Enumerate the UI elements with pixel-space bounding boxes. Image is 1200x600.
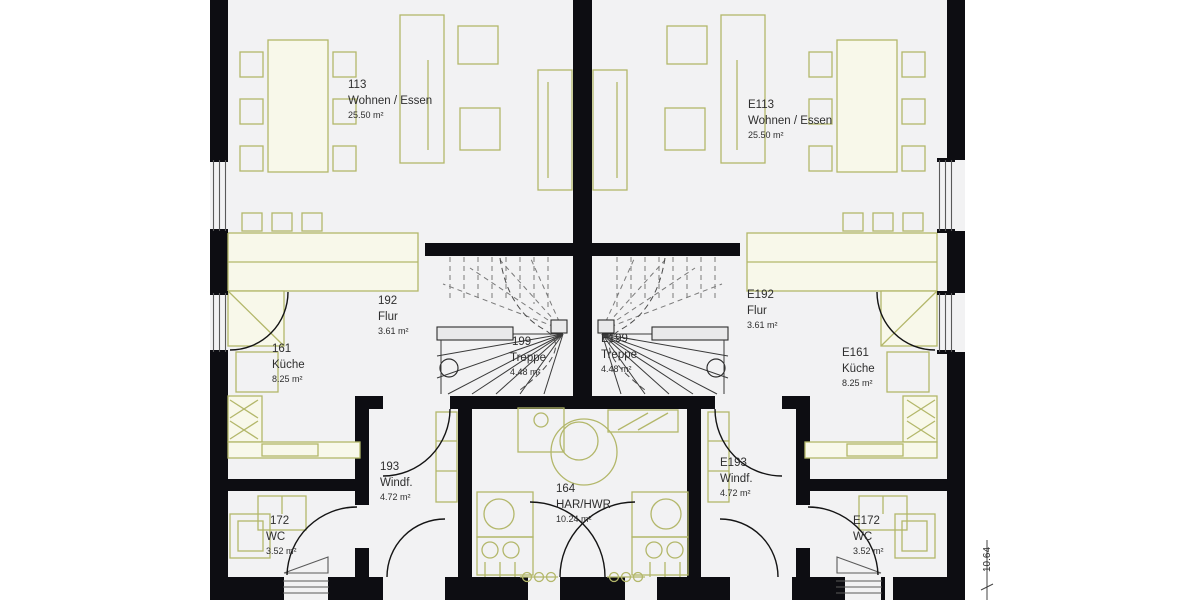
room-name: Küche xyxy=(272,359,305,371)
room-area: 8.25 m² xyxy=(272,374,303,384)
room-name: WC xyxy=(853,531,872,543)
room-area: 4.72 m² xyxy=(720,488,751,498)
room-name: Windf. xyxy=(720,473,753,485)
room-name: WC xyxy=(266,531,285,543)
room-area: 3.61 m² xyxy=(378,326,409,336)
room-number: 161 xyxy=(272,343,291,355)
room-number: E161 xyxy=(842,347,869,359)
room-area: 3.61 m² xyxy=(747,320,778,330)
room-name: Wohnen / Essen xyxy=(348,95,432,107)
room-name: Wohnen / Essen xyxy=(748,115,832,127)
room-area: 25.50 m² xyxy=(348,110,384,120)
room-area: 4.48 m² xyxy=(601,364,632,374)
room-area: 4.48 m² xyxy=(510,367,541,377)
room-area: 25.50 m² xyxy=(748,130,784,140)
room-name: Flur xyxy=(747,305,767,317)
room-number: 199 xyxy=(512,336,531,348)
floor-plan-page: 113 Wohnen / Essen 25.50 m² 192 Flur 3.6… xyxy=(0,0,1200,600)
room-name: Küche xyxy=(842,363,875,375)
room-number: 193 xyxy=(380,461,399,473)
room-number: E172 xyxy=(853,515,880,527)
floor-plan-drawing: 113 Wohnen / Essen 25.50 m² 192 Flur 3.6… xyxy=(0,0,1200,600)
room-area: 3.52 m² xyxy=(266,546,297,556)
room-number: 113 xyxy=(348,79,366,91)
room-number: E192 xyxy=(747,289,774,301)
room-area: 4.72 m² xyxy=(380,492,411,502)
room-name: Windf. xyxy=(380,477,413,489)
room-name: HAR/HWR xyxy=(556,499,611,511)
room-number: 172 xyxy=(270,515,289,527)
room-number: E193 xyxy=(720,457,747,469)
room-number: 192 xyxy=(378,295,397,307)
room-area: 8.25 m² xyxy=(842,378,873,388)
room-number: E199 xyxy=(601,333,628,345)
room-area: 3.52 m² xyxy=(853,546,884,556)
room-area: 10.24 m² xyxy=(556,514,592,524)
dimension-annotation: 10.64 xyxy=(981,540,993,600)
party-wall xyxy=(573,0,592,409)
room-name: Treppe xyxy=(510,352,546,364)
room-number: 164 xyxy=(556,483,576,495)
room-name: Flur xyxy=(378,311,398,323)
room-name: Treppe xyxy=(601,349,637,361)
room-number: E113 xyxy=(748,99,774,111)
dimension-value: 10.64 xyxy=(982,547,993,572)
